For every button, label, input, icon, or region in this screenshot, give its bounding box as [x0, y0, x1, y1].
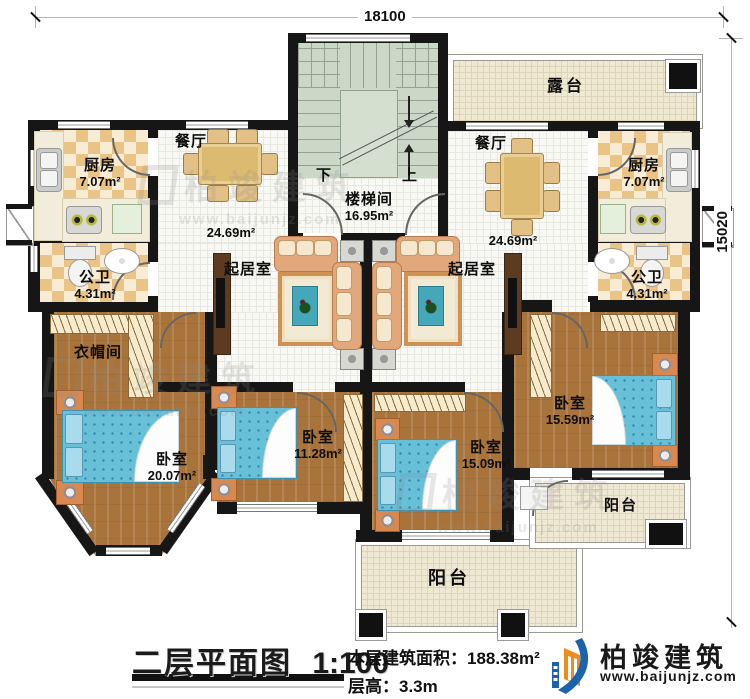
room-name: 卧室	[128, 452, 216, 469]
room-name: 起居室	[432, 262, 512, 279]
room-area: 4.31m²	[604, 287, 690, 302]
balcony-column	[356, 610, 386, 640]
nightstand	[375, 509, 400, 532]
pillow	[65, 414, 83, 444]
tv-screen	[508, 278, 517, 328]
toilet-tank	[64, 246, 96, 260]
wardrobe	[530, 314, 552, 398]
wall-segment	[678, 302, 700, 312]
fridge	[600, 204, 626, 234]
dining-chair	[207, 185, 229, 202]
room-area: 15.09m²	[440, 457, 532, 472]
wardrobe	[50, 314, 130, 334]
dining-chair	[236, 185, 258, 202]
room-label-balcony-right: 阳台	[592, 498, 650, 515]
wall-segment	[6, 240, 32, 245]
room-area: 20.07m²	[128, 469, 216, 484]
sofa-cushion	[296, 240, 314, 256]
wall-segment	[335, 382, 360, 392]
sofa-cushion	[278, 240, 296, 256]
toilet-tank	[636, 246, 668, 260]
company-website: www.baijunjz.com	[600, 668, 737, 684]
title-underline-thin	[132, 686, 344, 688]
bed-pillows	[220, 411, 236, 473]
dining-chair	[261, 153, 278, 175]
floor-height-label: 层高：	[348, 677, 399, 696]
room-label-dining-left: 餐厅	[160, 134, 222, 151]
company-logo-icon	[544, 634, 596, 696]
stair-down-label: 下	[312, 168, 336, 185]
stair-down-text: 下	[312, 168, 336, 185]
room-label-terrace: 露台	[534, 78, 598, 96]
wardrobe	[374, 394, 466, 412]
room-name: 公卫	[604, 270, 690, 287]
wall-segment	[317, 502, 363, 514]
pillow	[65, 447, 83, 477]
room-name: 餐厅	[160, 134, 222, 151]
room-area: 11.28m²	[272, 447, 364, 462]
sofa-cushion	[314, 240, 332, 256]
end-table	[372, 240, 396, 262]
sofa-cushion	[436, 240, 454, 256]
right-dimension-value: 15020	[714, 205, 731, 259]
nightstand	[375, 418, 400, 441]
room-label-bedroom2: 卧室 11.28m²	[272, 430, 364, 461]
wall-segment	[678, 312, 690, 468]
room-name: 卧室	[524, 396, 616, 413]
wall-segment	[217, 502, 237, 514]
wall-segment	[148, 130, 158, 138]
top-dimension-value: 18100	[358, 8, 412, 25]
room-label-dining-right: 餐厅	[460, 136, 522, 153]
sink-basin	[40, 170, 58, 187]
window	[466, 122, 548, 130]
bed-pillows	[656, 379, 672, 440]
room-label-bath-left: 公卫 4.31m²	[52, 270, 138, 301]
pillow	[656, 379, 672, 408]
bay-window	[106, 547, 150, 555]
bed-pillows	[380, 443, 396, 505]
room-area: 15.59m²	[524, 413, 616, 428]
room-name: 楼梯间	[332, 192, 406, 209]
room-area: 7.07m²	[60, 175, 140, 190]
window	[186, 121, 248, 129]
floor-height-value: 3.3m	[399, 677, 438, 696]
stove	[66, 206, 102, 234]
room-name: 衣帽间	[56, 345, 140, 362]
stair-treads-left	[298, 48, 340, 176]
sofa-cushion	[418, 240, 436, 256]
room-label-bedroom3: 卧室 15.09m²	[440, 440, 532, 471]
bed-pillows	[65, 414, 83, 477]
nightstand	[56, 480, 84, 505]
nightstand	[652, 353, 678, 376]
room-label-living-right: 起居室	[432, 262, 512, 279]
room-area: 16.95m²	[332, 209, 406, 224]
plan-title-text: 二层平面图	[132, 647, 292, 680]
room-label-bedroom-master: 卧室 20.07m²	[128, 452, 216, 483]
room-name: 阳台	[592, 498, 650, 515]
room-label-kitchen-right: 厨房 7.07m²	[604, 158, 684, 189]
sofa-cushion	[376, 292, 392, 316]
tv-screen	[216, 278, 225, 328]
pillow	[220, 411, 236, 441]
pillow	[380, 443, 396, 473]
fridge	[112, 204, 142, 234]
balcony-column	[646, 520, 686, 548]
window	[237, 504, 317, 512]
window	[592, 470, 664, 478]
coffee-table	[292, 286, 318, 326]
room-area: 7.07m²	[604, 175, 684, 190]
end-table	[340, 240, 364, 262]
wall-segment	[288, 33, 298, 243]
window	[691, 150, 699, 188]
wall-segment	[588, 176, 598, 233]
sofa-cushion	[376, 266, 392, 290]
room-label-living-left-area: 24.69m²	[196, 226, 266, 241]
pillow	[656, 411, 672, 440]
window-slider	[402, 532, 490, 540]
window	[618, 122, 664, 130]
nightstand	[652, 444, 678, 467]
dining-table-right	[500, 153, 544, 219]
room-label-kitchen-left: 厨房 7.07m²	[60, 158, 140, 189]
room-area: 24.69m²	[478, 234, 548, 249]
right-dimension-line	[731, 38, 732, 628]
room-name: 餐厅	[460, 136, 522, 153]
company-logo-svg	[544, 634, 596, 696]
sofa-cushion	[336, 318, 352, 342]
room-name: 厨房	[60, 158, 140, 175]
wall-segment	[6, 204, 32, 209]
sink-basin	[40, 152, 58, 169]
wall-segment	[372, 382, 465, 392]
sofa-cushion	[400, 240, 418, 256]
floor-area-text: 本层建筑面积：188.38m²	[348, 644, 540, 669]
coffee-table	[418, 286, 444, 326]
window	[30, 246, 38, 272]
floor-area-label: 本层建筑面积：	[348, 649, 467, 668]
wall-segment	[490, 530, 514, 542]
room-label-stairwell: 楼梯间 16.95m²	[332, 192, 406, 223]
room-name: 卧室	[272, 430, 364, 447]
floor-area-value: 188.38m²	[467, 649, 540, 668]
room-label-balcony-center: 阳台	[416, 568, 482, 588]
room-area: 4.31m²	[52, 287, 138, 302]
dining-chair	[543, 162, 560, 184]
room-label-bath-right: 公卫 4.31m²	[604, 270, 690, 301]
room-name: 露台	[534, 78, 598, 96]
stair-arrow-down-head	[404, 120, 414, 128]
cabinet	[520, 486, 548, 510]
sofa-cushion	[376, 318, 392, 342]
stair-arrow-down	[408, 96, 410, 120]
pillow	[220, 444, 236, 474]
room-label-living-right-area: 24.69m²	[478, 234, 548, 249]
sofa-cushion	[336, 292, 352, 316]
terrace-column	[666, 60, 700, 92]
stair-up-label: 上	[398, 168, 422, 185]
end-table	[340, 348, 364, 370]
wardrobe	[600, 314, 676, 332]
window	[58, 121, 110, 129]
dining-chair	[543, 190, 560, 212]
sofa-cushion	[336, 266, 352, 290]
room-name: 阳台	[416, 568, 482, 588]
stair-up-text: 上	[398, 168, 422, 185]
wall-segment	[588, 131, 598, 138]
room-label-cloakroom: 衣帽间	[56, 345, 140, 362]
stair-arrow-up-head	[404, 144, 414, 152]
stove	[630, 206, 666, 234]
room-area: 24.69m²	[196, 226, 266, 241]
floor-height-text: 层高：3.3m	[348, 672, 438, 697]
end-table	[372, 348, 396, 370]
pillow	[380, 476, 396, 506]
room-name: 公卫	[52, 270, 138, 287]
balcony-column	[498, 610, 528, 640]
room-label-living-left: 起居室	[208, 262, 288, 279]
window	[306, 34, 410, 42]
room-name: 厨房	[604, 158, 684, 175]
room-name: 卧室	[440, 440, 532, 457]
floor-plan: 18100 15020	[0, 0, 750, 699]
nightstand	[211, 386, 237, 409]
room-name: 起居室	[208, 262, 288, 279]
room-label-bedroom4: 卧室 15.59m²	[524, 396, 616, 427]
